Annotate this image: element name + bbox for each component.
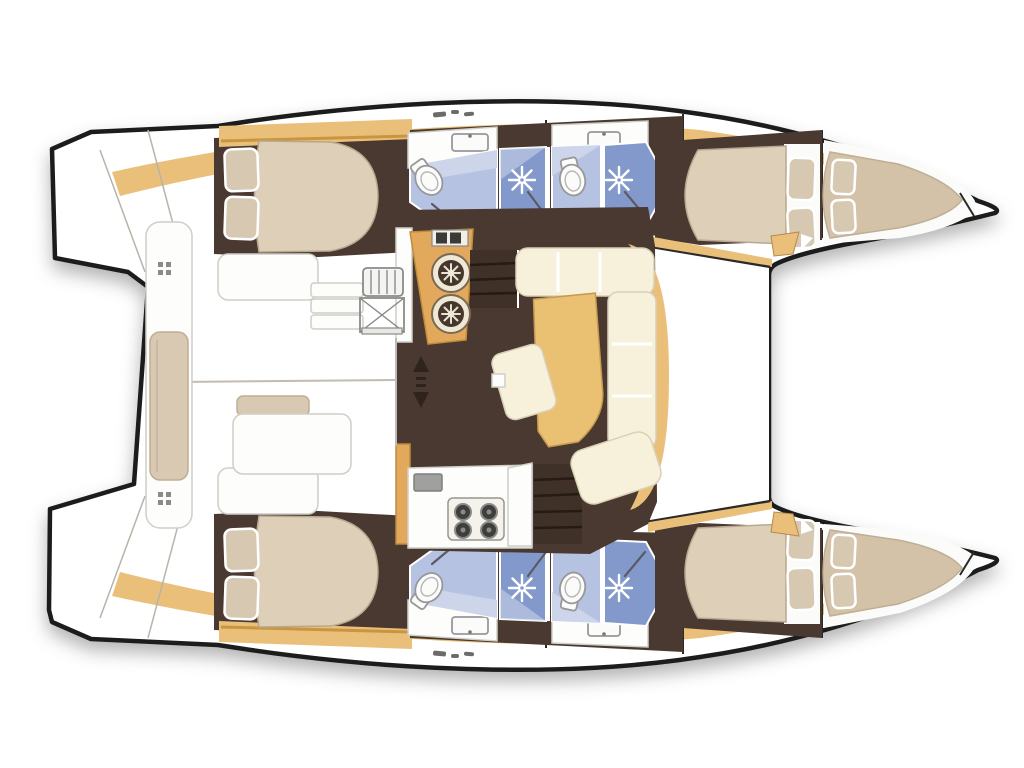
stair-wall bbox=[508, 463, 532, 546]
forward-cabin bbox=[655, 130, 822, 249]
faucet-icon bbox=[468, 134, 472, 138]
pillow bbox=[831, 159, 856, 194]
bench-cushion bbox=[150, 332, 188, 480]
starboard-hull-stairs bbox=[470, 250, 518, 308]
bow-berth bbox=[823, 140, 975, 244]
round-sink-icon bbox=[432, 295, 470, 333]
aft-cockpit-bench bbox=[146, 222, 192, 528]
stove-burner-icon bbox=[481, 522, 497, 538]
catamaran-floor-plan bbox=[0, 0, 1024, 768]
galley-appliance-dial bbox=[436, 233, 447, 244]
table-back-cushion bbox=[237, 396, 309, 416]
deck-cleat-icon bbox=[451, 110, 459, 114]
galley-sink bbox=[414, 474, 442, 491]
round-sink-icon bbox=[432, 254, 470, 292]
stove-burner-icon bbox=[481, 504, 497, 520]
cockpit-steps bbox=[311, 283, 363, 329]
small-stool bbox=[492, 374, 505, 387]
bridgedeck bbox=[396, 207, 769, 554]
double-bed bbox=[255, 141, 379, 252]
pillow bbox=[787, 158, 815, 201]
pillow bbox=[831, 199, 856, 233]
deck-winch-icon bbox=[464, 112, 474, 117]
galley-appliance-dial bbox=[450, 233, 461, 244]
shower-head-icon bbox=[606, 167, 632, 193]
stove-burner-icon bbox=[455, 522, 471, 538]
pillow bbox=[224, 196, 258, 239]
pillow bbox=[224, 148, 258, 191]
port-hull-stairs bbox=[508, 463, 582, 546]
stove-burner-icon bbox=[455, 504, 471, 520]
faucet-icon bbox=[602, 132, 606, 136]
cabin-storage bbox=[218, 254, 318, 300]
double-bed bbox=[685, 146, 786, 244]
floor-plan-canvas bbox=[0, 0, 1024, 768]
shower-head-icon bbox=[509, 167, 535, 193]
